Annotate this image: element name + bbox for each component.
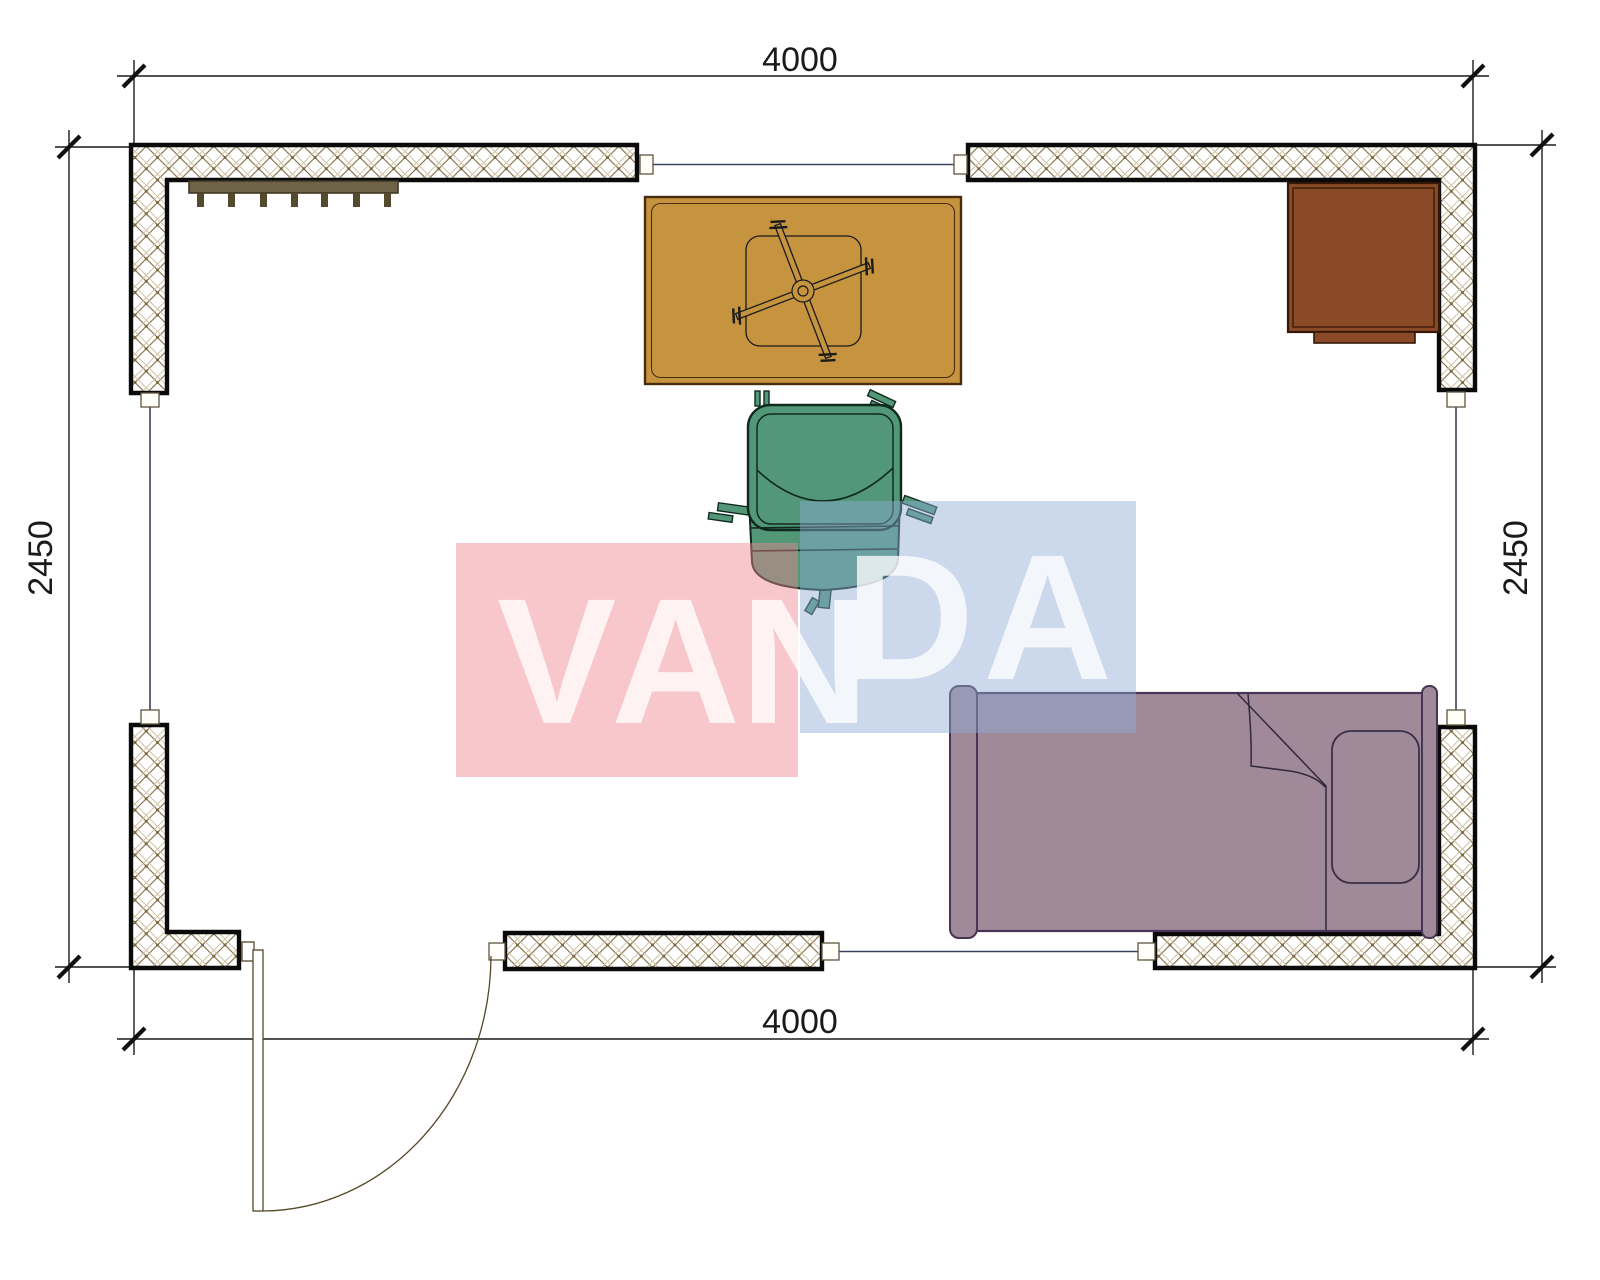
svg-text:D: D <box>845 517 974 717</box>
svg-text:A: A <box>611 561 740 761</box>
svg-text:2450: 2450 <box>1497 520 1535 596</box>
svg-text:4000: 4000 <box>762 1003 838 1041</box>
svg-text:4000: 4000 <box>762 41 838 79</box>
svg-text:2450: 2450 <box>22 520 60 596</box>
svg-text:A: A <box>983 517 1112 717</box>
svg-text:V: V <box>497 561 616 761</box>
